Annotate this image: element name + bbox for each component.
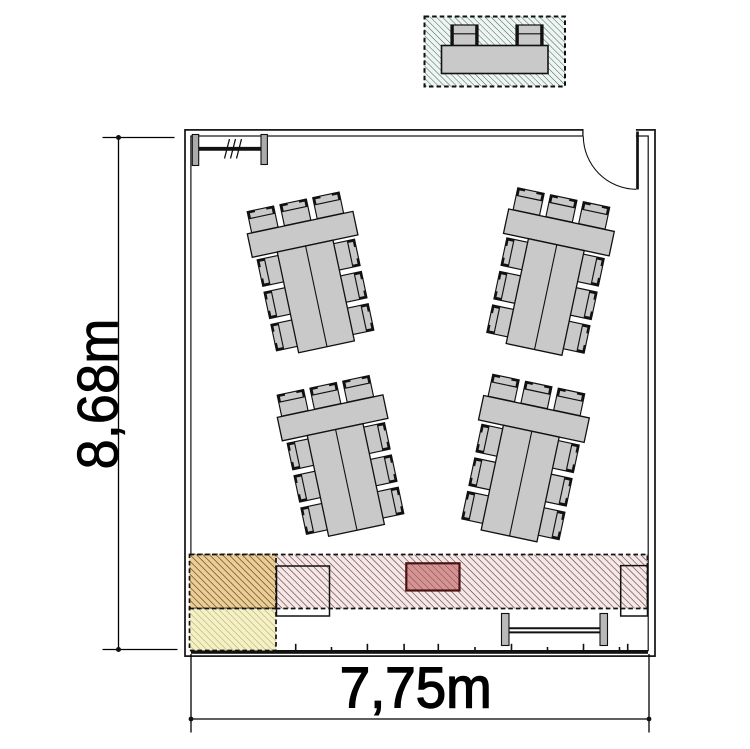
svg-text:8,68m: 8,68m: [67, 319, 131, 470]
svg-text:7,75m: 7,75m: [340, 657, 492, 721]
